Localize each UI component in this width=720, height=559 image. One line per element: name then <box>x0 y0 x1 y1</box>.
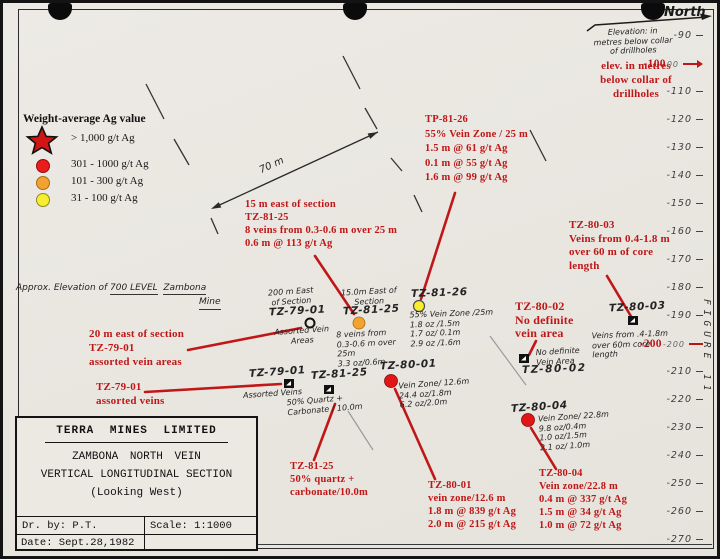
elevation-tick-label: -150 <box>666 198 692 209</box>
tick-dash-icon <box>696 175 703 176</box>
flag-inner <box>326 387 331 392</box>
text-line: TZ-80-04 <box>539 467 627 480</box>
punch-hole-icon <box>343 3 367 20</box>
legend-item-label: 31 - 100 g/t Ag <box>71 192 138 204</box>
annotation-tz-80-04: TZ-80-04Vein zone/22.8 m0.4 m @ 337 g/t … <box>539 467 627 532</box>
dimension-arrowhead-icon <box>211 202 221 209</box>
elevation-tick-label: -170 <box>666 254 692 265</box>
tick-dash-icon <box>696 455 703 456</box>
elevation-tick-label: -90 <box>673 30 692 41</box>
elevation-tick-label: -130 <box>666 142 692 153</box>
legend: Weight-average Ag value > 1,000 g/t Ag 3… <box>23 113 203 125</box>
text-line: Vein zone/22.8 m <box>539 480 627 493</box>
tick-dash-icon <box>696 427 703 428</box>
elevation-tick: -120 <box>666 114 703 125</box>
red-arrow-icon <box>697 60 703 68</box>
dimension-line-70m <box>213 132 378 208</box>
structure-dash <box>174 139 189 165</box>
text-line: TZ-79-01 <box>89 341 184 355</box>
star-icon <box>25 125 59 155</box>
elevation-tick: -240 <box>666 450 703 461</box>
marker-tz-81-25-east-orange-circle-icon <box>353 317 365 329</box>
title-rule <box>17 516 256 517</box>
tick-dash-icon <box>696 399 703 400</box>
annotation-tp-81-26: TP-81-2655% Vein Zone / 25 m1.5 m @ 61 g… <box>425 113 528 186</box>
title-rule <box>17 534 256 535</box>
text-line: 0.4 m @ 337 g/t Ag <box>539 493 627 506</box>
elevation-tick-label: -160 <box>666 226 692 237</box>
structure-dash <box>343 56 360 89</box>
tick-dash-icon <box>696 91 703 92</box>
pencil-line <box>490 336 526 385</box>
annotation-tz-79-01: TZ-79-01assorted veins <box>96 380 165 408</box>
text-line: TZ-80-01 <box>428 479 516 492</box>
hw-tz-81-26-note: 55% Vein Zone /25m1.8 oz /1.5m1.7 oz/ 0.… <box>409 308 494 349</box>
hw-tz-79-01-east-note: Assorted VeinAreas <box>270 324 333 347</box>
elevation-tick-label: -120 <box>666 114 692 125</box>
punch-hole-icon <box>48 3 72 20</box>
tick-dash-icon <box>696 147 703 148</box>
flag-inner <box>286 381 291 386</box>
elevation-tick: -130 <box>666 142 703 153</box>
text-line: TZ-81-25 <box>290 460 368 473</box>
leader-line-tp-81-26 <box>421 193 455 299</box>
text-line: 55% Vein Zone / 25 m <box>425 128 528 143</box>
tick-dash-icon <box>696 119 703 120</box>
elevation-tick: -250 <box>666 478 703 489</box>
marker-tz-80-04-red-circle-icon <box>522 414 535 427</box>
text-line: 0.6 m @ 113 g/t Ag <box>245 237 397 250</box>
date-value: Date: Sept.28,1982 <box>21 537 134 549</box>
elevation-tick: -150 <box>666 198 703 209</box>
elevation-tick: -190 <box>666 310 703 321</box>
hw-tz-80-01-note: Vein Zone/ 12.6m24.4 oz/1.8m6.2 oz/2.0m <box>398 377 471 410</box>
elevation-tick: -160 <box>666 226 703 237</box>
annotation-tz-80-02: TZ-80-02No definitevein area <box>515 300 574 341</box>
text-line: 2.0 m @ 215 g/t Ag <box>428 518 516 531</box>
text-line: length <box>569 260 670 274</box>
structure-dash <box>530 130 546 161</box>
elevation-tick-label: -100 <box>644 58 666 70</box>
structure-dash <box>414 195 422 212</box>
dimension-arrowhead-icon <box>368 132 378 139</box>
legend-item-label: 301 - 1000 g/t Ag <box>71 158 149 170</box>
legend-title: Weight-average Ag value <box>23 113 203 125</box>
yellow-circle-icon <box>36 193 50 207</box>
structure-dash <box>391 158 402 171</box>
pencil-line <box>348 411 373 450</box>
text-line: vein area <box>515 327 574 341</box>
title-rule <box>45 442 228 443</box>
text-line: TZ-80-03 <box>569 219 670 233</box>
level-note-700level: 700 LEVEL <box>110 283 158 295</box>
level-note-zambona: Zambona <box>163 283 206 295</box>
text-line: assorted vein areas <box>89 355 184 369</box>
text-line: Veins from 0.4-1.8 m <box>569 233 670 247</box>
elevation-tick: -110 <box>666 86 703 97</box>
elevation-tick-label: -220 <box>666 394 692 405</box>
elevation-tick: -260 <box>666 506 703 517</box>
tick-dash-icon <box>696 231 703 232</box>
text-line: TZ-79-01 <box>96 380 165 394</box>
elevation-tick: -230 <box>666 422 703 433</box>
company-name: TERRA MINES LIMITED <box>17 425 256 437</box>
text-line: TZ-80-02 <box>515 300 574 314</box>
hw-tz-81-25-east-hole: TZ-81-25 <box>343 305 400 317</box>
tick-dash-icon <box>696 35 703 36</box>
elevation-tick-label: -270 <box>666 534 692 545</box>
elevation-tick-label: -250 <box>666 478 692 489</box>
elevation-tick: -270 <box>666 534 703 545</box>
text-line: TP-81-26 <box>425 113 528 128</box>
legend-item-label: 101 - 300 g/t Ag <box>71 175 143 187</box>
annotation-tz-81-25-east: 15 m east of sectionTZ-81-258 veins from… <box>245 198 397 250</box>
text-line: 15 m east of section <box>245 198 397 211</box>
text-line: 0.1 m @ 55 g/t Ag <box>425 157 528 172</box>
red-circle-icon <box>36 159 50 173</box>
text-line: 50% quartz + <box>290 473 368 486</box>
elevation-tick: -220 <box>666 394 703 405</box>
elevation-tick: -140 <box>666 170 703 181</box>
structure-dash <box>211 218 218 234</box>
elevation-tick: -10000 <box>644 58 703 70</box>
tick-dash-icon <box>683 63 697 65</box>
legend-item-label: > 1,000 g/t Ag <box>71 132 135 144</box>
hw-tz-81-25-hole: TZ-81-25 <box>311 368 368 381</box>
elevation-tick-label: -260 <box>666 506 692 517</box>
elevation-tick: -210 <box>666 366 703 377</box>
title-divider <box>144 516 145 549</box>
text-line: over 60 m of core <box>569 246 670 260</box>
drawing-title-line3: (Looking West) <box>17 487 256 499</box>
text-line: 1.8 m @ 839 g/t Ag <box>428 505 516 518</box>
level-note-mine: Mine <box>199 298 221 310</box>
text-line: No definite <box>515 314 574 328</box>
elevation-tick-handwritten: 00 <box>667 60 679 69</box>
drawing-sheet: Weight-average Ag value > 1,000 g/t Ag 3… <box>0 0 720 559</box>
text-line: 1.5 m @ 61 g/t Ag <box>425 142 528 157</box>
elevation-tick: -170 <box>666 254 703 265</box>
text-line: 1.6 m @ 99 g/t Ag <box>425 171 528 186</box>
figure-label: FIGURE 11 <box>701 299 712 395</box>
hw-tz-80-04-note: Vein Zone/ 22.8m9.8 oz/0.4m1.0 oz/1.5m2.… <box>538 410 611 453</box>
dimension-label-70m: 70 m <box>258 156 285 175</box>
elevation-tick-label: -210 <box>666 366 692 377</box>
elevation-tick: -90 <box>673 30 703 41</box>
elevation-tick-label: -240 <box>666 450 692 461</box>
text-line: vein zone/12.6 m <box>428 492 516 505</box>
level-note: Approx. Elevation of 700 LEVEL Zambona <box>16 284 206 294</box>
marker-tz-81-25-flag-icon <box>324 385 334 394</box>
annotation-tz-80-03: TZ-80-03Veins from 0.4-1.8 mover 60 m of… <box>569 219 670 273</box>
text-line: 1.5 m @ 34 g/t Ag <box>539 506 627 519</box>
tick-dash-icon <box>696 483 703 484</box>
hw-tz-81-26-hole: TZ-81-26 <box>411 288 468 299</box>
drawing-title-line2: VERTICAL LONGITUDINAL SECTION <box>17 469 256 481</box>
elevation-tick-label: -190 <box>666 310 692 321</box>
text-line: assorted veins <box>96 394 165 408</box>
elevation-tick: -180 <box>666 282 703 293</box>
scale-value: Scale: 1:1000 <box>150 520 232 532</box>
elevation-tick-label: -230 <box>666 422 692 433</box>
orange-circle-icon <box>36 176 50 190</box>
annotation-tz-81-25: TZ-81-2550% quartz +carbonate/10.0m <box>290 460 368 499</box>
text-line: 20 m east of section <box>89 327 184 341</box>
hw-tz-80-01-hole: TZ-80-01 <box>380 360 437 372</box>
tick-dash-icon <box>696 511 703 512</box>
hw-tz-80-03-note: Veins from .4-1.8mover 60m corelength <box>592 329 669 360</box>
structure-dash <box>365 108 377 129</box>
flag-inner <box>521 356 526 361</box>
annotation-tz-79-01-east: 20 m east of sectionTZ-79-01assorted vei… <box>89 327 184 369</box>
hw-tz-79-01-east-hole: TZ-79-01 <box>269 306 326 318</box>
annotation-tz-80-01: TZ-80-01vein zone/12.6 m1.8 m @ 839 g/t … <box>428 479 516 531</box>
hw-tz-80-02-hole: TZ-80-02 <box>522 364 587 376</box>
marker-tz-80-02-flag-icon <box>519 354 529 363</box>
elevation-tick-label: -110 <box>666 86 692 97</box>
tick-dash-icon <box>696 203 703 204</box>
text-line: TZ-81-25 <box>245 211 397 224</box>
hw-tz-79-01-hole: TZ-79-01 <box>249 366 306 379</box>
tick-dash-icon <box>696 539 703 540</box>
text-line: carbonate/10.0m <box>290 486 368 499</box>
text-line: 8 veins from 0.3-0.6 m over 25 m <box>245 224 397 237</box>
title-block: TERRA MINES LIMITED ZAMBONA NORTH VEIN V… <box>15 416 258 551</box>
drawn-by: Dr. by: P.T. <box>22 520 98 532</box>
drawing-title-line1: ZAMBONA NORTH VEIN <box>17 451 256 463</box>
text-line: 1.0 m @ 72 g/t Ag <box>539 519 627 532</box>
tick-dash-icon <box>696 259 703 260</box>
elevation-tick-label: -140 <box>666 170 692 181</box>
marker-tz-80-01-red-circle-icon <box>385 375 398 388</box>
elevation-tick-label: -180 <box>666 282 692 293</box>
tick-dash-icon <box>696 287 703 288</box>
level-note-text: Approx. Elevation of <box>16 283 110 293</box>
